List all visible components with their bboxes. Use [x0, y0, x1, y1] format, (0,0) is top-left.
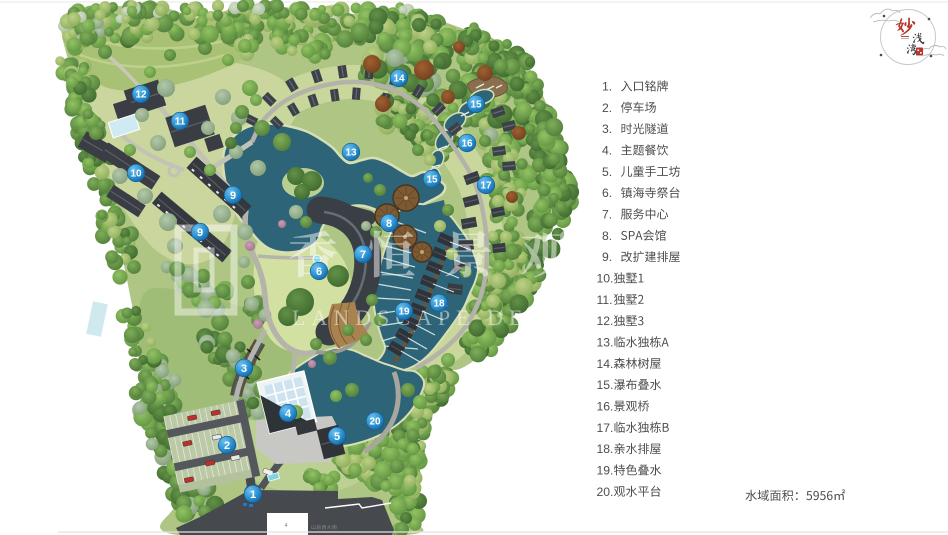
svg-text:18: 18: [433, 299, 445, 310]
svg-text:LANDSCAPE DESIGN: LANDSCAPE DESIGN: [292, 305, 604, 330]
svg-text:15: 15: [470, 100, 482, 111]
svg-text:10: 10: [130, 169, 142, 180]
svg-text:20: 20: [369, 417, 381, 428]
svg-text:13.: 13.: [597, 336, 614, 350]
svg-text:2: 2: [224, 440, 230, 452]
svg-text:16: 16: [461, 139, 473, 150]
svg-text:3: 3: [241, 363, 247, 375]
svg-text:2.: 2.: [602, 101, 612, 115]
svg-text:12.: 12.: [597, 314, 614, 328]
svg-text:8: 8: [386, 218, 392, 230]
svg-text:5: 5: [334, 431, 340, 443]
svg-text:4: 4: [285, 408, 292, 420]
svg-text:4.: 4.: [602, 144, 612, 158]
svg-text:19.: 19.: [597, 463, 614, 477]
svg-text:1: 1: [250, 489, 256, 501]
svg-text:4: 4: [285, 523, 288, 529]
svg-text:16.: 16.: [597, 399, 614, 413]
svg-text:10.: 10.: [597, 272, 614, 286]
svg-text:19: 19: [398, 307, 410, 318]
svg-text:9: 9: [230, 190, 236, 202]
svg-text:3.: 3.: [602, 122, 612, 136]
svg-text:7.: 7.: [602, 208, 612, 222]
svg-text:17.: 17.: [597, 421, 614, 435]
svg-text:15.: 15.: [597, 378, 614, 392]
svg-text:18.: 18.: [597, 442, 614, 456]
svg-text:12: 12: [135, 90, 147, 101]
svg-text:17: 17: [480, 181, 492, 192]
svg-text:1.: 1.: [602, 80, 612, 94]
svg-text:11: 11: [175, 117, 186, 128]
svg-text:14: 14: [393, 74, 405, 85]
svg-text:6.: 6.: [602, 186, 612, 200]
svg-text:13: 13: [345, 148, 357, 159]
svg-text:9.: 9.: [602, 250, 612, 264]
svg-text:6: 6: [316, 266, 322, 278]
svg-text:9: 9: [197, 227, 203, 239]
svg-text:11.: 11.: [597, 293, 613, 307]
svg-text:15: 15: [426, 175, 438, 186]
svg-text:5.: 5.: [602, 165, 612, 179]
svg-text:7: 7: [360, 249, 366, 261]
svg-text:8.: 8.: [602, 229, 612, 243]
svg-text:14.: 14.: [597, 357, 614, 371]
svg-text:20.: 20.: [597, 485, 614, 499]
